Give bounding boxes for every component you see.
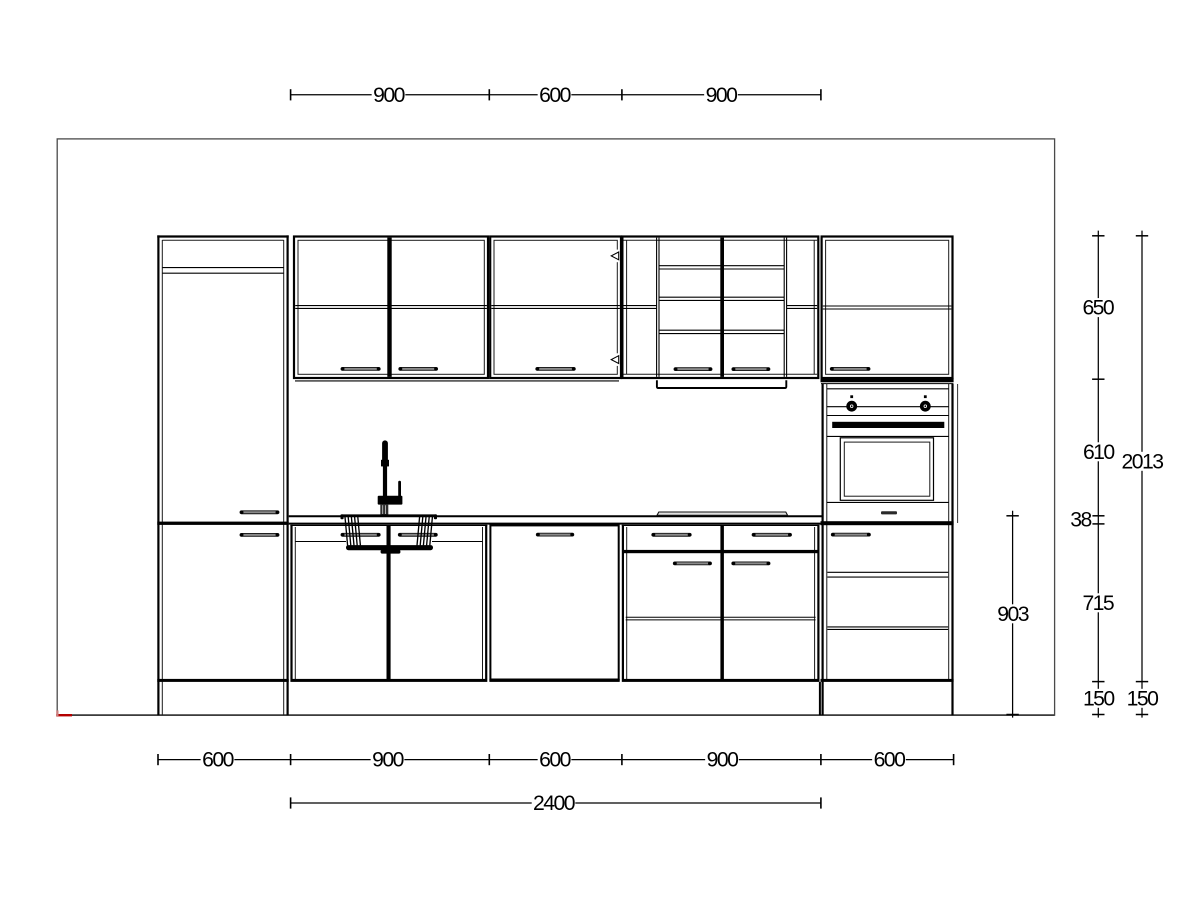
svg-text:715: 715 [1082, 592, 1113, 615]
svg-text:38: 38 [1070, 509, 1091, 532]
svg-text:903: 903 [997, 603, 1028, 626]
svg-text:600: 600 [874, 749, 905, 772]
svg-text:2400: 2400 [533, 792, 575, 815]
svg-text:600: 600 [539, 84, 570, 107]
svg-text:600: 600 [539, 749, 570, 772]
svg-text:600: 600 [202, 749, 233, 772]
svg-text:2013: 2013 [1122, 450, 1164, 473]
svg-text:900: 900 [707, 749, 738, 772]
svg-text:610: 610 [1083, 441, 1114, 464]
svg-text:900: 900 [706, 84, 737, 107]
svg-text:650: 650 [1082, 297, 1113, 320]
svg-text:150: 150 [1083, 687, 1114, 710]
svg-text:900: 900 [373, 84, 404, 107]
svg-text:150: 150 [1127, 687, 1158, 710]
svg-text:900: 900 [372, 749, 403, 772]
